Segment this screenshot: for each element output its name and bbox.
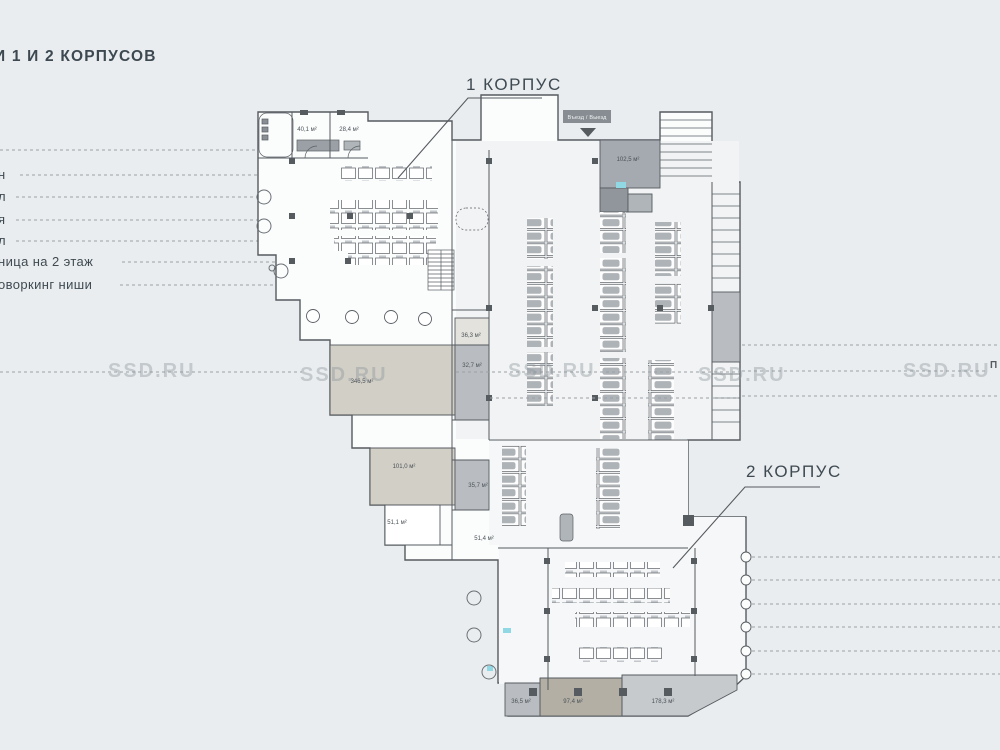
legend-item: л xyxy=(0,189,6,204)
area-label: 178,3 м² xyxy=(652,699,675,705)
watermark: SSD.RU xyxy=(300,364,388,387)
area-label: 32,7 м² xyxy=(462,363,481,369)
watermark: SSD.RU xyxy=(508,360,596,383)
legend-item: я xyxy=(0,212,5,227)
watermark: SSD.RU xyxy=(903,360,991,383)
page-title: И 1 И 2 КОРПУСОВ xyxy=(0,48,157,66)
area-label: 102,5 м² xyxy=(617,157,640,163)
area-label: 101,0 м² xyxy=(393,464,416,470)
parking-hall-floor xyxy=(456,141,739,439)
entrance-label: Въезд / Выезд xyxy=(567,115,607,121)
floor-plan-page: Въезд / Выезд 40,1 м² 28,4 м² 102,5 м² 3… xyxy=(0,0,1000,750)
leader-lines-right xyxy=(742,345,1000,674)
area-label: 51,1 м² xyxy=(387,520,406,526)
area-label: 40,1 м² xyxy=(297,127,316,133)
watermark: SSD.RU xyxy=(108,360,196,383)
entrance-badge: Въезд / Выезд xyxy=(563,110,611,137)
legend-item-coworking-niches: оворкинг ниши xyxy=(0,277,92,292)
watermark: SSD.RU xyxy=(698,364,786,387)
area-label: 35,7 м² xyxy=(468,483,487,489)
legend-item: н xyxy=(0,167,6,182)
legend-item: л xyxy=(0,233,6,248)
legend-item-stairs-2nd-floor: ница на 2 этаж xyxy=(0,254,93,269)
area-label: 28,4 м² xyxy=(339,127,358,133)
area-label: 97,4 м² xyxy=(563,699,582,705)
entrance-arrow-icon xyxy=(580,128,596,137)
office-desks-building1 xyxy=(330,166,438,265)
building-2-label: 2 КОРПУС xyxy=(746,462,842,482)
area-label: 36,5 м² xyxy=(511,699,530,705)
area-label: 36,3 м² xyxy=(461,333,480,339)
building-1-label: 1 КОРПУС xyxy=(466,75,562,95)
area-label: 51,4 м² xyxy=(474,536,493,542)
right-edge-partial-label: П xyxy=(990,360,997,371)
